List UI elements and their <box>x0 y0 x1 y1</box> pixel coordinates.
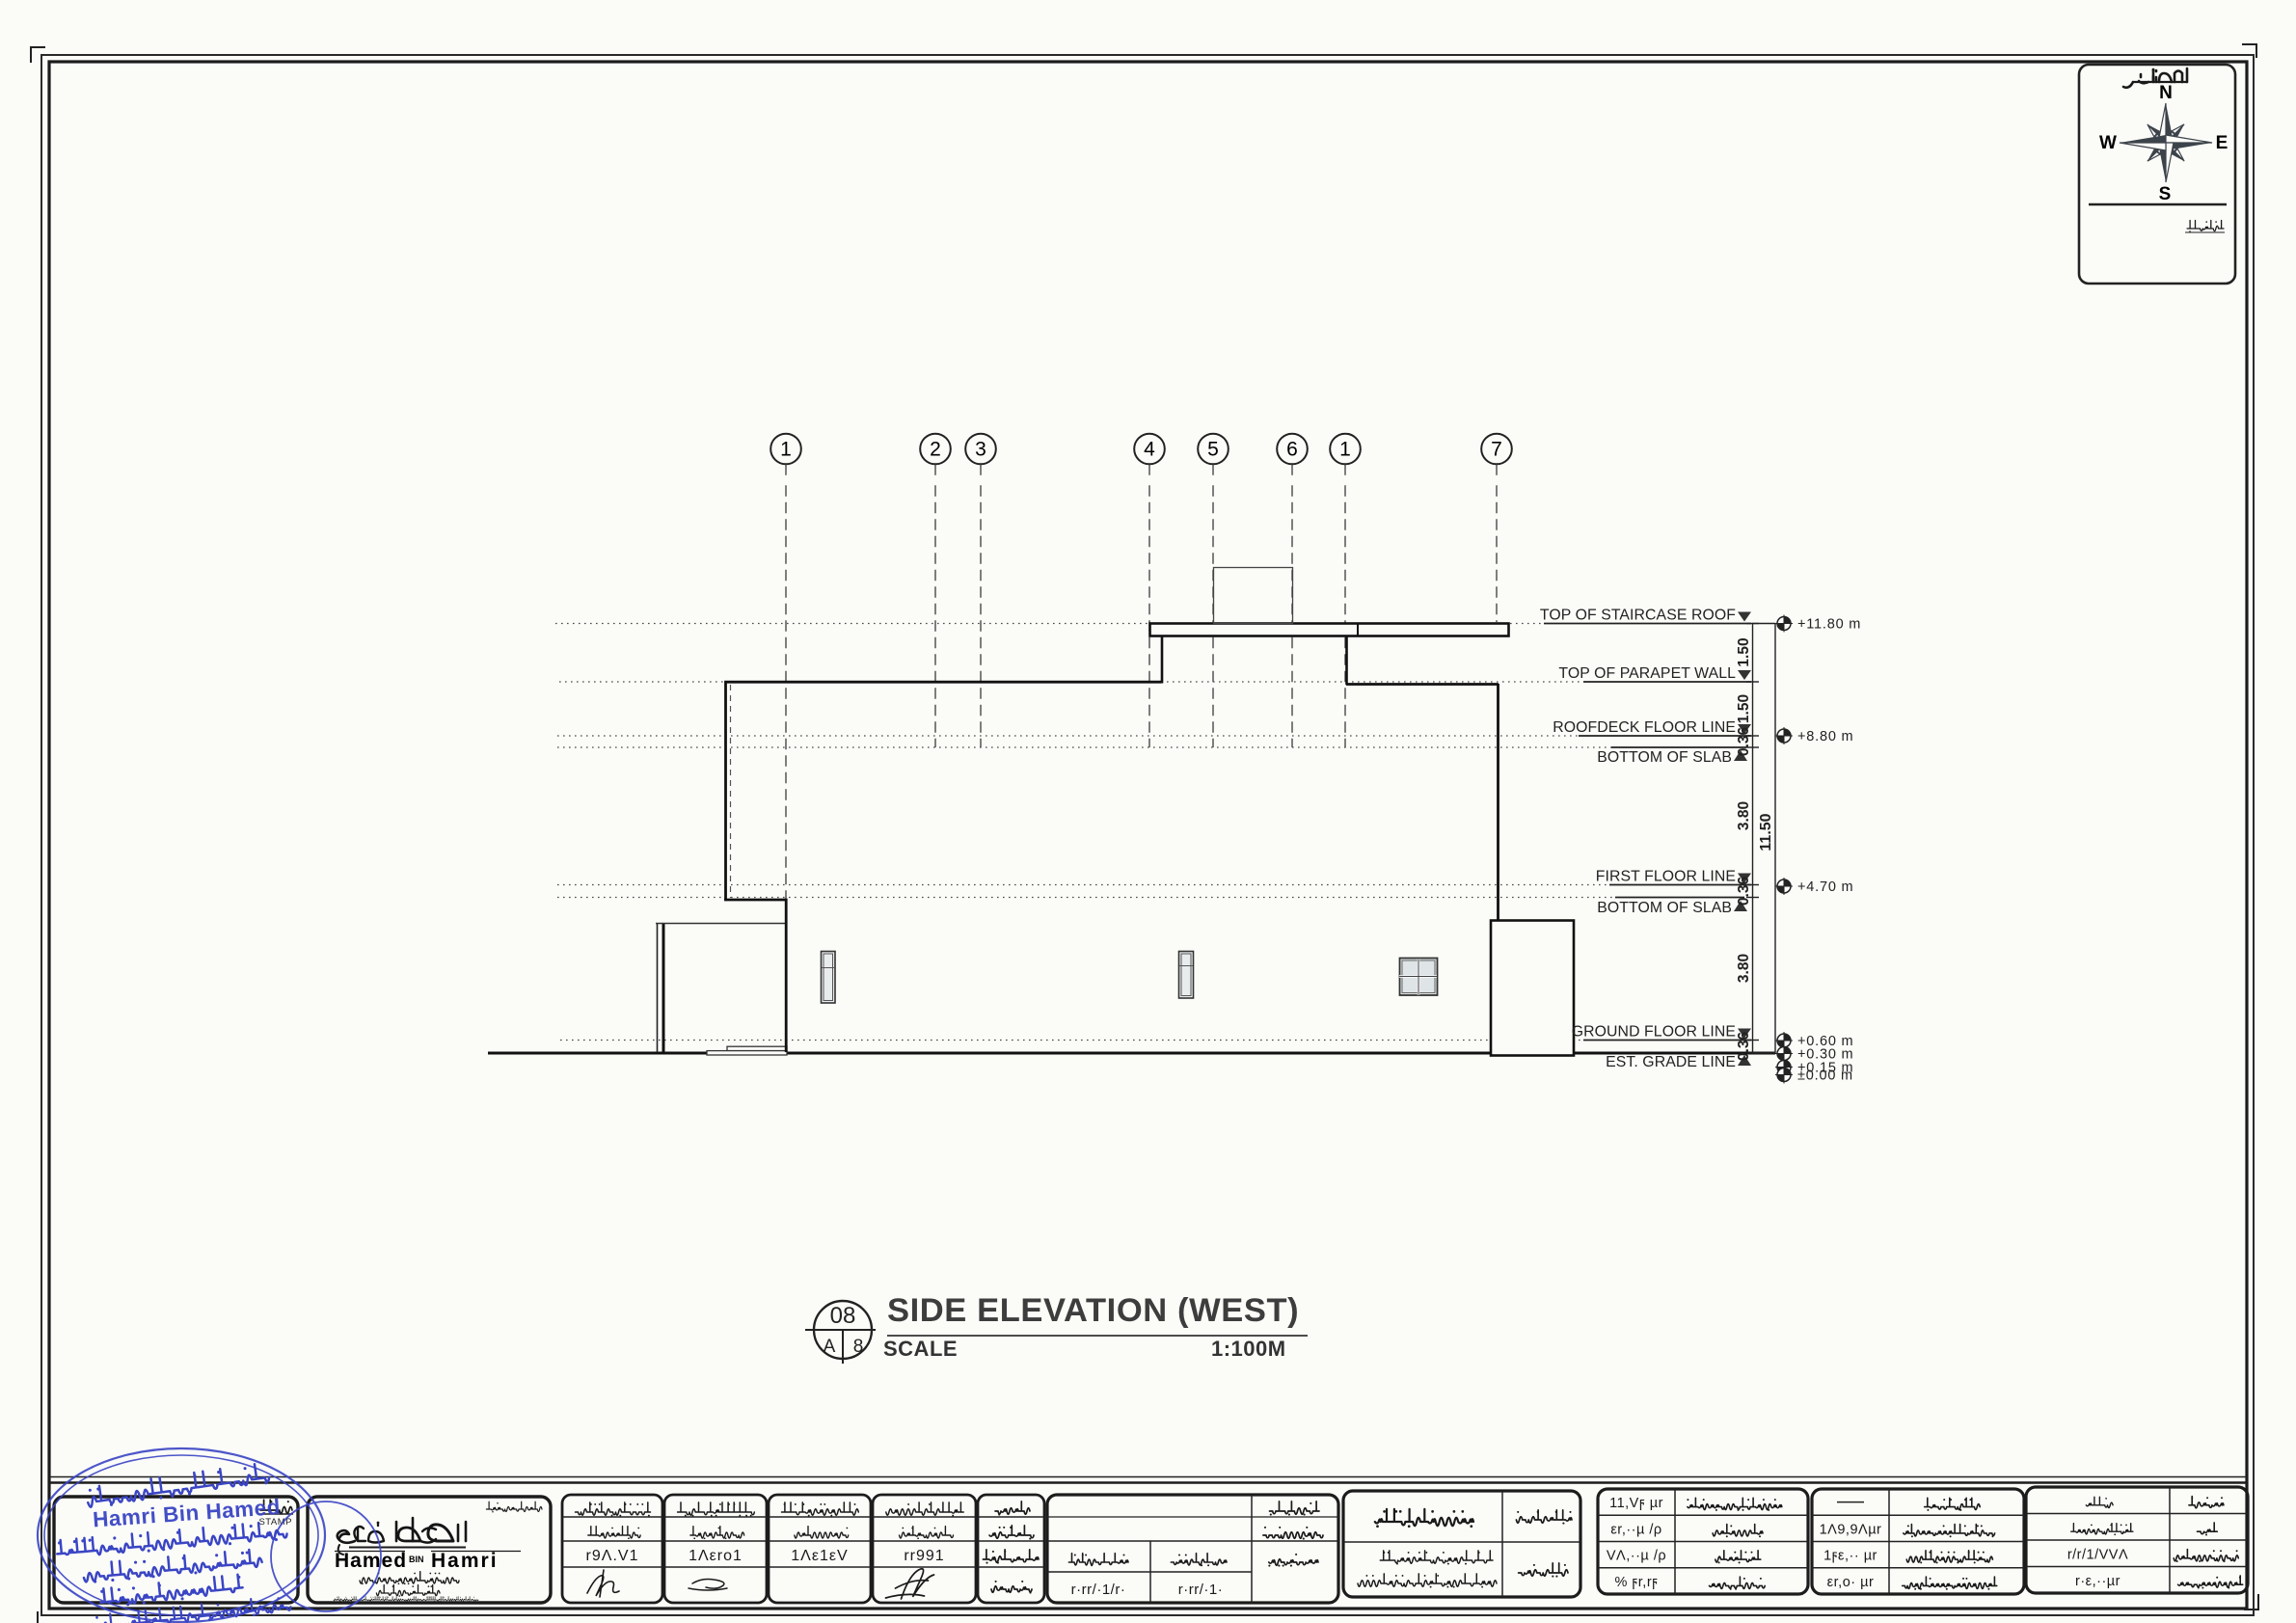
svg-text:+8.80 m: +8.80 m <box>1797 729 1853 744</box>
svg-text:SIDE ELEVATION (WEST): SIDE ELEVATION (WEST) <box>887 1292 1299 1329</box>
svg-text:FIRST FLOOR LINE: FIRST FLOOR LINE <box>1596 869 1736 885</box>
svg-text:3.80: 3.80 <box>1736 954 1752 983</box>
svg-text:rr991: rr991 <box>904 1548 944 1564</box>
svg-text:±0.00 m: ±0.00 m <box>1797 1068 1853 1084</box>
svg-text:εr,··µ /ρ: εr,··µ /ρ <box>1610 1522 1661 1537</box>
svg-text:7: 7 <box>1491 439 1502 461</box>
svg-text:1: 1 <box>780 439 792 461</box>
svg-text:6: 6 <box>1286 439 1298 461</box>
svg-text:1.50: 1.50 <box>1736 637 1752 666</box>
svg-text:3.80: 3.80 <box>1736 801 1752 830</box>
svg-text:1:100M: 1:100M <box>1211 1337 1286 1361</box>
svg-text:1: 1 <box>1339 439 1351 461</box>
svg-text:+11.80 m: +11.80 m <box>1797 617 1861 633</box>
svg-text:08: 08 <box>830 1303 856 1329</box>
svg-text:1Λ9,9Λµr: 1Λ9,9Λµr <box>1820 1522 1882 1537</box>
svg-text:W: W <box>2099 133 2117 153</box>
svg-text:2: 2 <box>930 439 941 461</box>
svg-text:0.36: 0.36 <box>1736 1032 1752 1062</box>
svg-text:Hamed: Hamed <box>335 1550 407 1572</box>
svg-text:0.36: 0.36 <box>1736 727 1752 757</box>
svg-text:EST. GRADE LINE: EST. GRADE LINE <box>1606 1054 1736 1070</box>
svg-text:BOTTOM OF SLAB: BOTTOM OF SLAB <box>1597 900 1732 916</box>
svg-text:N: N <box>2159 83 2173 103</box>
svg-text:GROUND FLOOR LINE: GROUND FLOOR LINE <box>1572 1024 1736 1041</box>
svg-text:ROOFDECK FLOOR LINE: ROOFDECK FLOOR LINE <box>1553 719 1736 736</box>
svg-text:E: E <box>2216 133 2228 153</box>
svg-text:5: 5 <box>1207 439 1219 461</box>
svg-text:3: 3 <box>975 439 986 461</box>
svg-text:% ϝr,rϝ: % ϝr,rϝ <box>1614 1575 1658 1590</box>
svg-text:TOP OF PARAPET WALL: TOP OF PARAPET WALL <box>1558 665 1736 682</box>
svg-text:Hamri: Hamri <box>431 1550 499 1572</box>
svg-text:VΛ,··µ /ρ: VΛ,··µ /ρ <box>1607 1549 1666 1564</box>
svg-text:r9Λ.V1: r9Λ.V1 <box>586 1548 639 1564</box>
svg-text:r/r/1/VVΛ: r/r/1/VVΛ <box>2067 1547 2128 1562</box>
svg-text:r·rr/·1·: r·rr/·1· <box>1178 1582 1223 1598</box>
svg-text:11,Vϝ µr: 11,Vϝ µr <box>1609 1496 1663 1511</box>
svg-text:+4.70 m: +4.70 m <box>1797 879 1853 895</box>
svg-text:SCALE: SCALE <box>883 1337 958 1361</box>
svg-text:1Λεro1: 1Λεro1 <box>689 1548 743 1564</box>
svg-text:εr,o· µr: εr,o· µr <box>1827 1575 1875 1590</box>
svg-text:8: 8 <box>853 1337 864 1357</box>
svg-text:BOTTOM OF SLAB: BOTTOM OF SLAB <box>1597 749 1732 766</box>
svg-text:r·ε,··µr: r·ε,··µr <box>2075 1574 2120 1589</box>
svg-text:1ϝε,·· µr: 1ϝε,·· µr <box>1823 1549 1877 1564</box>
svg-text:TOP OF STAIRCASE ROOF: TOP OF STAIRCASE ROOF <box>1540 608 1736 624</box>
svg-text:r·rr/·1/r·: r·rr/·1/r· <box>1071 1582 1126 1598</box>
svg-text:11.50: 11.50 <box>1758 813 1774 851</box>
svg-text:4: 4 <box>1144 439 1155 461</box>
svg-text:0.36: 0.36 <box>1736 877 1752 906</box>
svg-text:S: S <box>2159 184 2172 204</box>
svg-text:A: A <box>824 1337 836 1357</box>
svg-text:BIN: BIN <box>409 1555 424 1564</box>
svg-text:1Λε1εV: 1Λε1εV <box>791 1548 848 1564</box>
svg-text:1.50: 1.50 <box>1736 694 1752 723</box>
svg-text:Hamri Bin Hamed: Hamri Bin Hamed <box>92 1495 281 1532</box>
